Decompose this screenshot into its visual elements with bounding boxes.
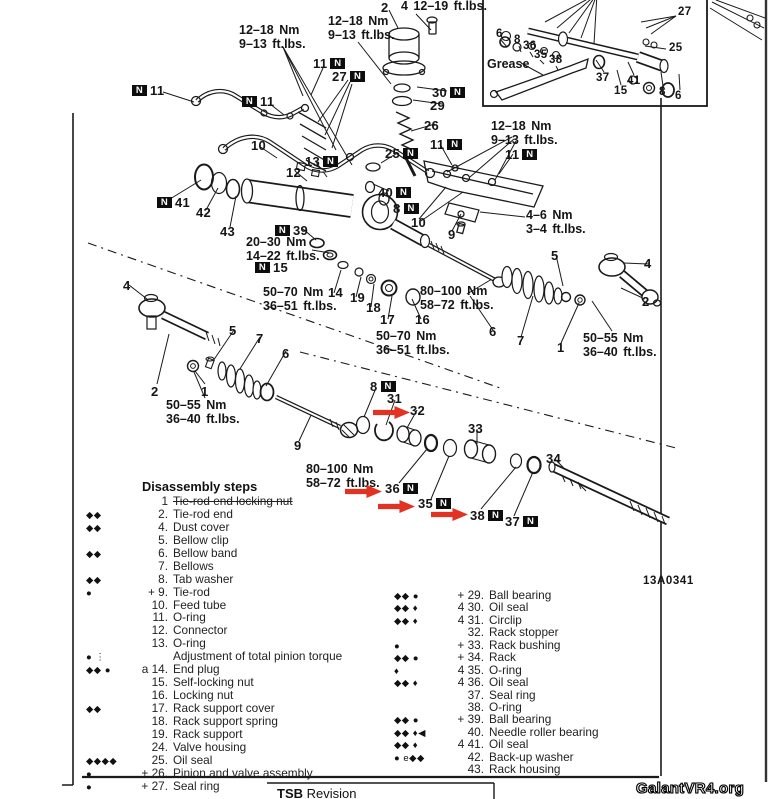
part-number-label: 18	[366, 300, 381, 315]
grease-label: Grease	[487, 57, 529, 71]
step-item: 37.Seal ring	[394, 688, 599, 700]
step-item: 18.Rack support spring	[86, 714, 342, 727]
n-marker-badge: N	[157, 197, 172, 209]
step-label: Tie-rod	[173, 585, 210, 599]
part-number-text: 4	[123, 278, 131, 293]
part-number-label: 6	[496, 28, 503, 40]
part-number-label: 4	[644, 256, 652, 271]
part-number-label: 1	[201, 384, 209, 399]
step-item: ◆◆ ●+ 39.Ball bearing	[394, 712, 599, 724]
part-number-text: 15	[614, 85, 627, 97]
part-number-text: 11	[505, 147, 519, 162]
part-number-text: 35	[534, 49, 547, 61]
n-marker-badge: N	[436, 498, 451, 510]
step-number: 18.	[134, 714, 173, 728]
step-number: 6.	[134, 546, 173, 560]
part-number-text: 36	[385, 481, 400, 496]
disassembly-steps-left-column: 1Tie-rod end locking nut◆◆2.Tie-rod end◆…	[86, 494, 342, 792]
part-number-label: 9	[294, 438, 302, 453]
step-number: 11.	[134, 610, 173, 624]
part-number-label: 16	[415, 312, 430, 327]
part-number-text: 42	[196, 205, 211, 220]
part-number-text: 6	[675, 90, 682, 102]
step-markers: ◆◆ ♦	[394, 616, 446, 627]
step-markers: ◆◆ ♦	[394, 603, 446, 614]
part-number-text: 18	[366, 300, 381, 315]
part-number-text: 5	[229, 323, 237, 338]
step-markers: ◆◆ ♦	[394, 678, 446, 689]
part-number-text: 43	[220, 224, 235, 239]
step-label: Pinion and valve assembly	[173, 766, 313, 780]
footer-tsb-rest: Revision	[307, 786, 357, 799]
n-marker-badge: N	[350, 71, 365, 83]
step-label: Bellow band	[173, 546, 237, 560]
part-number-label: 40N	[378, 185, 411, 200]
part-number-text: 9	[294, 438, 302, 453]
step-label: Connector	[173, 623, 227, 637]
step-label: Feed tube	[173, 598, 226, 612]
n-marker-badge: N	[403, 483, 418, 495]
part-number-label: 25	[669, 42, 682, 54]
part-number-label: 33	[468, 421, 483, 436]
step-item: 16.Locking nut	[86, 688, 342, 701]
step-item: ●+ 26.Pinion and valve assembly	[86, 766, 342, 779]
part-number-label: 9	[448, 227, 456, 242]
n-marker-badge: N	[403, 148, 418, 160]
step-markers: ●	[86, 782, 134, 793]
part-number-text: 27	[678, 6, 691, 18]
part-number-label: N11	[132, 83, 164, 98]
step-item: ◆◆ ♦4 36.Oil seal	[394, 675, 599, 687]
step-item: ◆◆ ♦4 30.Oil seal	[394, 600, 599, 612]
disassembly-steps-right-column: ◆◆ ●+ 29.Ball bearing◆◆ ♦4 30.Oil seal◆◆…	[394, 588, 599, 775]
step-item: 12.Connector	[86, 623, 342, 636]
torque-spec-label: 12–18 Nm9–13 ft.lbs.	[239, 24, 306, 51]
step-markers: ◆◆	[86, 575, 134, 586]
step-number: 24.	[134, 740, 173, 754]
step-number: a 14.	[134, 662, 173, 676]
step-item: 5.Bellow clip	[86, 533, 342, 546]
part-number-label: 4	[123, 278, 131, 293]
step-number: 4.	[134, 520, 173, 534]
step-number: 43.	[446, 762, 489, 776]
part-number-text: 8	[659, 86, 666, 98]
part-number-label: 27N	[332, 69, 365, 84]
part-number-label: N41	[157, 195, 190, 210]
step-item: 19.Rack support	[86, 727, 342, 740]
part-number-label: 17	[380, 312, 395, 327]
part-number-label: 2	[151, 384, 159, 399]
step-number: 5.	[134, 533, 173, 547]
part-number-text: 11	[260, 94, 274, 109]
step-number: 17.	[134, 701, 173, 715]
part-number-label: 35N	[418, 496, 451, 511]
part-number-text: 41	[175, 195, 190, 210]
part-number-text: 40	[378, 185, 393, 200]
step-label: Valve housing	[173, 740, 246, 754]
step-markers: ◆◆ ●	[394, 715, 446, 726]
manual-page: 211N27NN11N1130N292611N25N11N1013N1240N8…	[0, 0, 770, 799]
part-number-label: 1	[557, 340, 565, 355]
step-label: Rack support spring	[173, 714, 278, 728]
part-number-text: 38	[470, 508, 485, 523]
part-number-label: 37	[596, 72, 609, 84]
part-number-text: 5	[551, 248, 559, 263]
step-label: Seal ring	[173, 779, 220, 793]
step-markers: ◆◆ ●	[86, 665, 134, 676]
torque-spec-label: 12–18 Nm9–13 ft.lbs.	[328, 15, 395, 42]
step-label: Rack housing	[489, 762, 560, 776]
part-number-label: 15	[614, 85, 627, 97]
part-number-label: 35	[534, 49, 547, 61]
part-number-text: 17	[380, 312, 395, 327]
part-number-text: 12	[286, 165, 301, 180]
step-item: ◆◆2.Tie-rod end	[86, 507, 342, 520]
part-number-label: 31	[387, 391, 402, 406]
part-number-label: 8	[514, 34, 521, 46]
step-label: End plug	[173, 662, 220, 676]
part-number-text: 4	[644, 256, 652, 271]
step-markers: ◆◆	[86, 510, 134, 521]
n-marker-badge: N	[450, 87, 465, 99]
step-number: 8.	[134, 572, 173, 586]
torque-spec-label: 4–6 Nm3–4 ft.lbs.	[526, 209, 586, 236]
part-number-text: 1	[201, 384, 209, 399]
step-label: Adjustment of total pinion torque	[173, 649, 342, 663]
step-markers: ●	[86, 769, 134, 780]
part-number-label: 8	[659, 86, 666, 98]
part-number-text: 2	[151, 384, 159, 399]
part-number-text: 32	[410, 403, 425, 418]
n-marker-badge: N	[404, 203, 419, 215]
step-number: + 27.	[134, 779, 173, 793]
step-number: 13.	[134, 636, 173, 650]
step-number: 12.	[134, 623, 173, 637]
part-number-text: 6	[282, 346, 290, 361]
step-number: 19.	[134, 727, 173, 741]
part-number-label: 32	[410, 403, 425, 418]
part-number-label: 6	[489, 324, 497, 339]
step-item: ◆◆ ●+ 34.Rack	[394, 650, 599, 662]
step-item: 24.Valve housing	[86, 740, 342, 753]
part-number-label: 25N	[385, 146, 418, 161]
part-number-label: 10	[411, 215, 426, 230]
step-label: Oil seal	[173, 753, 212, 767]
part-number-label: 8N	[393, 201, 419, 216]
step-item: 15.Self-locking nut	[86, 675, 342, 688]
part-number-label: 7	[517, 333, 525, 348]
n-marker-badge: N	[242, 96, 257, 108]
footer-tsb-bold: TSB	[277, 786, 303, 799]
torque-spec-label: 50–70 Nm36–51 ft.lbs.	[263, 286, 337, 313]
n-marker-badge: N	[447, 139, 462, 151]
part-number-label: 6	[282, 346, 290, 361]
step-markers: ◆◆◆◆	[86, 756, 134, 767]
step-number: 15.	[134, 675, 173, 689]
n-marker-badge: N	[523, 516, 538, 528]
n-marker-badge: N	[330, 58, 345, 70]
part-number-label: 2	[642, 294, 650, 309]
step-item: ♦4 35.O-ring	[394, 663, 599, 675]
step-label: Tie-rod end	[173, 507, 233, 521]
part-number-text: 6	[496, 28, 503, 40]
step-markers: ● ⋮	[86, 652, 134, 663]
step-item: ◆◆ ♦4 31.Circlip	[394, 613, 599, 625]
part-number-text: 19	[350, 290, 365, 305]
torque-spec-label: 12–18 Nm9–13 ft.lbs.	[491, 120, 558, 147]
part-number-text: 8	[370, 379, 378, 394]
torque-spec-label: 80–100 Nm58–72 ft.lbs.	[420, 285, 494, 312]
part-number-text: 2	[642, 294, 650, 309]
n-marker-badge: N	[255, 262, 270, 274]
part-number-label: 41	[627, 75, 640, 87]
step-item: 1Tie-rod end locking nut	[86, 494, 342, 507]
step-label: Dust cover	[173, 520, 229, 534]
step-item: 32.Rack stopper	[394, 625, 599, 637]
diagram-code: 13A0341	[643, 575, 694, 587]
part-number-text: 16	[415, 312, 430, 327]
part-number-label: 26	[424, 118, 439, 133]
leader-lines	[129, 0, 765, 516]
step-label: Bellows	[173, 559, 214, 573]
part-number-text: 38	[549, 54, 562, 66]
part-number-text: 11	[313, 56, 327, 71]
disassembly-steps-title: Disassembly steps	[142, 479, 257, 494]
step-number: 25.	[134, 753, 173, 767]
step-markers: ●	[86, 588, 134, 599]
step-item: ◆◆ ●a 14.End plug	[86, 662, 342, 675]
part-number-label: 36N	[385, 481, 418, 496]
part-number-label: 37N	[505, 514, 538, 529]
n-marker-badge: N	[132, 85, 147, 97]
part-number-text: 11	[150, 83, 164, 98]
part-number-text: 8	[393, 201, 401, 216]
step-markers: ◆◆ ♦◀	[394, 728, 446, 739]
part-number-label: N11	[242, 94, 274, 109]
part-number-label: 38N	[470, 508, 503, 523]
step-markers: ●	[394, 641, 446, 652]
step-label: Rack support	[173, 727, 243, 741]
step-label: Tab washer	[173, 572, 233, 586]
step-item: ◆◆17.Rack support cover	[86, 701, 342, 714]
step-number: + 26.	[134, 766, 173, 780]
part-number-label: 10	[251, 138, 266, 153]
step-item: ●+ 33.Rack bushing	[394, 638, 599, 650]
torque-spec-label: 50–70 Nm36–51 ft.lbs.	[376, 330, 450, 357]
part-number-text: 26	[424, 118, 439, 133]
part-number-text: 6	[489, 324, 497, 339]
step-item: 13.O-ring	[86, 636, 342, 649]
part-number-text: 34	[546, 451, 561, 466]
step-item: 38.O-ring	[394, 700, 599, 712]
part-number-label: 5	[551, 248, 559, 263]
step-number: 16.	[134, 688, 173, 702]
step-markers: ◆◆	[86, 549, 134, 560]
step-number: 1	[134, 494, 173, 508]
step-item: ● ⋮Adjustment of total pinion torque	[86, 649, 342, 662]
part-number-text: 11	[430, 137, 444, 152]
step-label: Bellow clip	[173, 533, 229, 547]
part-number-label: 7	[256, 331, 264, 346]
part-number-label: 42	[196, 205, 211, 220]
step-label: Rack support cover	[173, 701, 275, 715]
part-number-label: 11N	[505, 147, 537, 162]
step-markers: ◆◆	[86, 523, 134, 534]
part-number-text: 27	[332, 69, 347, 84]
part-number-text: 31	[387, 391, 402, 406]
part-number-label: 43	[220, 224, 235, 239]
step-item: ◆◆6.Bellow band	[86, 546, 342, 559]
part-number-label: 13N	[305, 154, 338, 169]
step-number: 10.	[134, 598, 173, 612]
footer-tsb-revision: TSB Revision	[277, 786, 356, 799]
step-label: Tie-rod end locking nut	[173, 494, 293, 508]
part-number-text: 37	[505, 514, 520, 529]
part-number-label: 12	[286, 165, 301, 180]
part-number-text: 37	[596, 72, 609, 84]
step-number: + 9.	[134, 585, 173, 599]
part-number-text: 2	[381, 0, 389, 15]
step-number: 2.	[134, 507, 173, 521]
step-item: ◆◆8.Tab washer	[86, 572, 342, 585]
step-item: ◆◆◆◆25.Oil seal	[86, 753, 342, 766]
step-item: ● e◆◆42.Back-up washer	[394, 750, 599, 762]
part-number-text: 29	[430, 98, 445, 113]
part-number-text: 1	[557, 340, 565, 355]
step-markers: ◆◆ ♦	[394, 740, 446, 751]
part-number-label: 5	[229, 323, 237, 338]
part-number-text: 7	[517, 333, 525, 348]
step-item: ◆◆ ♦4 41.Oil seal	[394, 737, 599, 749]
n-marker-badge: N	[396, 187, 411, 199]
n-marker-badge: N	[488, 510, 503, 522]
torque-spec-label: 50–55 Nm36–40 ft.lbs.	[583, 332, 657, 359]
part-number-text: 41	[627, 75, 640, 87]
part-number-label: 11N	[430, 137, 462, 152]
part-number-text: 10	[411, 215, 426, 230]
step-item: ◆◆ ●+ 29.Ball bearing	[394, 588, 599, 600]
part-number-label: 29	[430, 98, 445, 113]
step-label: Self-locking nut	[173, 675, 254, 689]
torque-spec-label: 50–55 Nm36–40 ft.lbs.	[166, 399, 240, 426]
torque-spec-label: 20–30 Nm14–22 ft.lbs.	[246, 236, 320, 263]
part-number-label: 38	[549, 54, 562, 66]
part-number-text: 8	[514, 34, 521, 46]
n-marker-badge: N	[323, 156, 338, 168]
part-number-label: 27	[678, 6, 691, 18]
step-item: ◆◆4.Dust cover	[86, 520, 342, 533]
part-number-text: 7	[256, 331, 264, 346]
step-label: O-ring	[173, 636, 206, 650]
part-number-label: 2	[381, 0, 389, 15]
step-label: Locking nut	[173, 688, 233, 702]
step-item: 7.Bellows	[86, 559, 342, 572]
part-number-text: 10	[251, 138, 266, 153]
step-item: ◆◆ ♦◀40.Needle roller bearing	[394, 725, 599, 737]
step-markers: ◆◆ ●	[394, 591, 446, 602]
part-number-label: 19	[350, 290, 365, 305]
n-marker-badge: N	[522, 149, 537, 161]
step-markers: ◆◆	[86, 704, 134, 715]
step-markers: ◆◆ ●	[394, 653, 446, 664]
part-number-text: 9	[448, 227, 456, 242]
part-number-text: 33	[468, 421, 483, 436]
step-item: 11.O-ring	[86, 610, 342, 623]
part-number-text: 13	[305, 154, 320, 169]
torque-spec-label: 4 12–19 ft.lbs.	[401, 0, 487, 14]
step-number: 7.	[134, 559, 173, 573]
step-item: 10.Feed tube	[86, 598, 342, 611]
part-number-text: 25	[669, 42, 682, 54]
site-watermark: GalantVR4.org	[636, 780, 744, 797]
part-number-text: 35	[418, 496, 433, 511]
step-label: O-ring	[173, 610, 206, 624]
part-number-text: 25	[385, 146, 400, 161]
part-number-label: 34	[546, 451, 561, 466]
part-number-label: 6	[675, 90, 682, 102]
step-markers: ♦	[394, 666, 446, 677]
step-item: 43.Rack housing	[394, 762, 599, 774]
step-markers: ● e◆◆	[394, 753, 446, 764]
step-item: ●+ 9.Tie-rod	[86, 585, 342, 598]
